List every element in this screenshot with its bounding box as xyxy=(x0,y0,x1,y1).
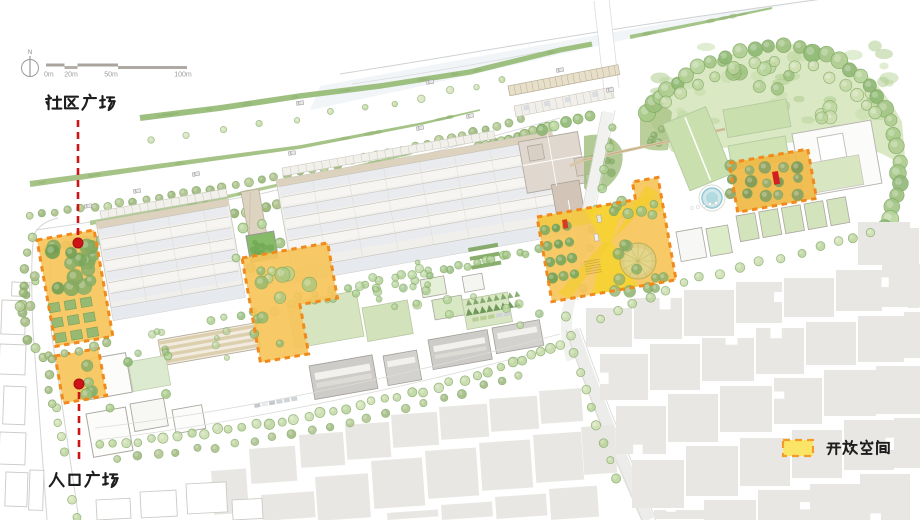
svg-text:20m: 20m xyxy=(64,72,78,79)
svg-text:100m: 100m xyxy=(174,72,192,79)
svg-text:50m: 50m xyxy=(104,72,118,79)
svg-text:0m: 0m xyxy=(44,72,54,79)
svg-text:N: N xyxy=(28,50,32,56)
